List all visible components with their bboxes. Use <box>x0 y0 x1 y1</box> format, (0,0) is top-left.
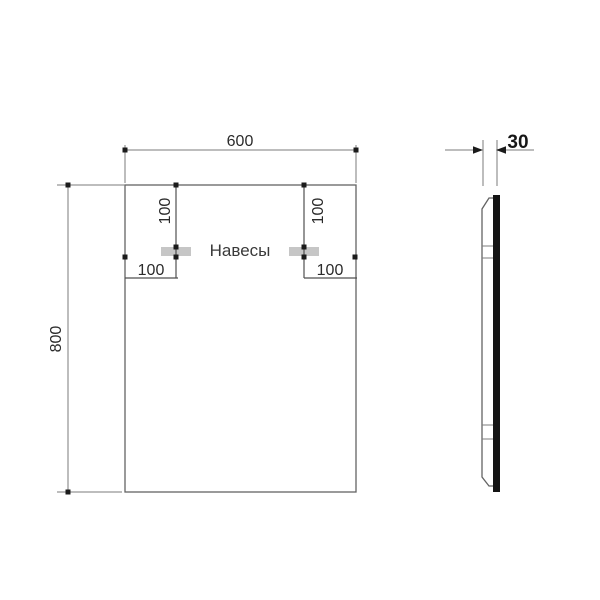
height-dim-marker-top <box>66 183 71 188</box>
mirror-front-outline <box>125 185 356 492</box>
thickness-arrow-right-pointing <box>473 146 483 154</box>
bracket-right-edge-marker <box>353 255 358 260</box>
height-dimension: 800 <box>48 183 125 495</box>
width-dimension-label: 600 <box>227 133 254 150</box>
bracket-left-lower-marker <box>174 255 179 260</box>
width-dim-marker-left <box>123 148 128 153</box>
bracket-right: 100 100 <box>289 183 358 280</box>
thickness-dimension: 30 <box>445 132 534 186</box>
bracket-right-vertical-offset-label: 100 <box>310 198 327 225</box>
brackets-caption: Навесы <box>210 241 271 260</box>
technical-drawing-canvas: 600 800 100 100 <box>0 0 600 600</box>
mirror-dimension-drawing: 600 800 100 100 <box>0 0 600 600</box>
bracket-right-lower-marker <box>302 255 307 260</box>
width-dimension: 600 <box>123 133 359 183</box>
bracket-right-horizontal-offset-label: 100 <box>317 262 344 279</box>
bracket-left: 100 100 <box>123 183 192 280</box>
side-glass-profile <box>493 195 500 492</box>
side-backpanel-outline <box>482 198 494 486</box>
side-bracket-upper <box>482 246 493 258</box>
side-view: 30 <box>445 132 534 492</box>
bracket-left-upper-marker <box>174 245 179 250</box>
width-dim-marker-right <box>354 148 359 153</box>
side-bracket-lower <box>482 425 493 439</box>
bracket-right-upper-marker <box>302 245 307 250</box>
height-dim-marker-bottom <box>66 490 71 495</box>
bracket-right-top-edge-marker <box>302 183 307 188</box>
bracket-left-vertical-offset-label: 100 <box>157 198 174 225</box>
bracket-left-horizontal-offset-label: 100 <box>138 262 165 279</box>
bracket-left-edge-marker <box>123 255 128 260</box>
front-view: 600 800 100 100 <box>48 133 359 495</box>
height-dimension-label: 800 <box>48 326 65 353</box>
thickness-dimension-label: 30 <box>507 132 528 153</box>
bracket-left-top-edge-marker <box>174 183 179 188</box>
